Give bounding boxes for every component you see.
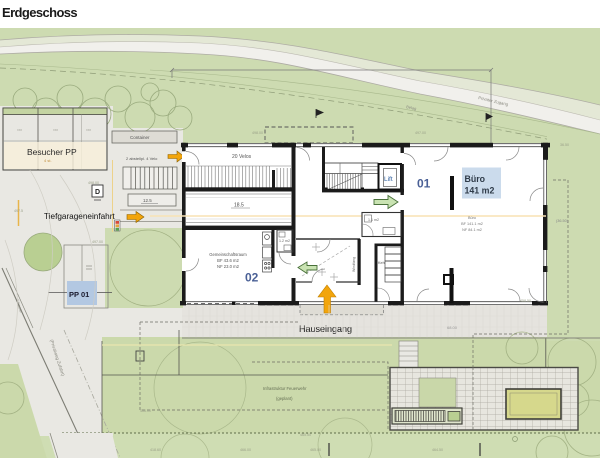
svg-text:NF 84.1 m2: NF 84.1 m2 <box>462 228 482 232</box>
svg-text:Gemeinschaftsraum: Gemeinschaftsraum <box>209 252 247 257</box>
svg-text:Erdgeschoss: Erdgeschoss <box>2 5 77 20</box>
svg-text:PP 01: PP 01 <box>69 290 89 299</box>
svg-text:1.1 m2: 1.1 m2 <box>368 218 379 222</box>
svg-text:458.50: 458.50 <box>520 299 531 303</box>
svg-text:497.00: 497.00 <box>415 131 426 135</box>
svg-text:498.00: 498.00 <box>252 131 263 135</box>
svg-text:Büro: Büro <box>465 174 486 184</box>
svg-text:Windfang: Windfang <box>352 257 356 272</box>
svg-text:466.00: 466.00 <box>240 448 251 452</box>
svg-text:2 abstellpl. 4 Velo: 2 abstellpl. 4 Velo <box>126 156 158 161</box>
svg-text:1.2 m2: 1.2 m2 <box>279 239 290 243</box>
svg-text:Lift: Lift <box>384 176 393 183</box>
svg-text:Tiefgarageneinfahrt: Tiefgarageneinfahrt <box>44 212 115 221</box>
svg-text:D: D <box>95 189 100 196</box>
svg-text:(36.50): (36.50) <box>556 219 569 223</box>
svg-text:36.50: 36.50 <box>560 143 569 147</box>
svg-text:497.00: 497.00 <box>92 240 103 244</box>
svg-text:12.5: 12.5 <box>143 198 152 203</box>
svg-text:NF 23.0 m2: NF 23.0 m2 <box>217 264 240 269</box>
svg-text:Keh: Keh <box>378 261 385 265</box>
svg-text:02: 02 <box>245 271 259 285</box>
svg-text:464.50: 464.50 <box>432 448 443 452</box>
svg-text:498.00: 498.00 <box>88 181 99 185</box>
svg-text:18.5: 18.5 <box>234 203 244 209</box>
svg-text:465.50: 465.50 <box>300 433 311 437</box>
svg-text:20 Velos: 20 Velos <box>232 154 252 160</box>
svg-text:465.00: 465.00 <box>310 448 321 452</box>
svg-text:xxx: xxx <box>53 128 58 132</box>
svg-text:Container: Container <box>130 135 150 140</box>
svg-text:68.00: 68.00 <box>447 325 458 330</box>
svg-text:01: 01 <box>417 177 431 191</box>
svg-text:Hauseingang: Hauseingang <box>299 324 352 334</box>
svg-text:Büro: Büro <box>468 216 476 220</box>
svg-text:4 st.: 4 st. <box>44 158 52 163</box>
svg-text:141 m2: 141 m2 <box>465 186 495 196</box>
svg-text:466.00: 466.00 <box>140 409 151 413</box>
svg-text:BF 141.1 m2: BF 141.1 m2 <box>461 222 483 226</box>
svg-text:(geplant): (geplant) <box>276 396 293 401</box>
svg-text:418.60: 418.60 <box>150 448 161 452</box>
svg-text:497.5: 497.5 <box>14 209 23 213</box>
svg-text:Infrastruktur Feuerwehr: Infrastruktur Feuerwehr <box>263 386 307 391</box>
svg-text:xxx: xxx <box>17 128 22 132</box>
svg-text:Besucher PP: Besucher PP <box>27 147 77 157</box>
svg-text:xxx: xxx <box>86 128 91 132</box>
svg-text:BF 43.6 m2: BF 43.6 m2 <box>217 258 239 263</box>
